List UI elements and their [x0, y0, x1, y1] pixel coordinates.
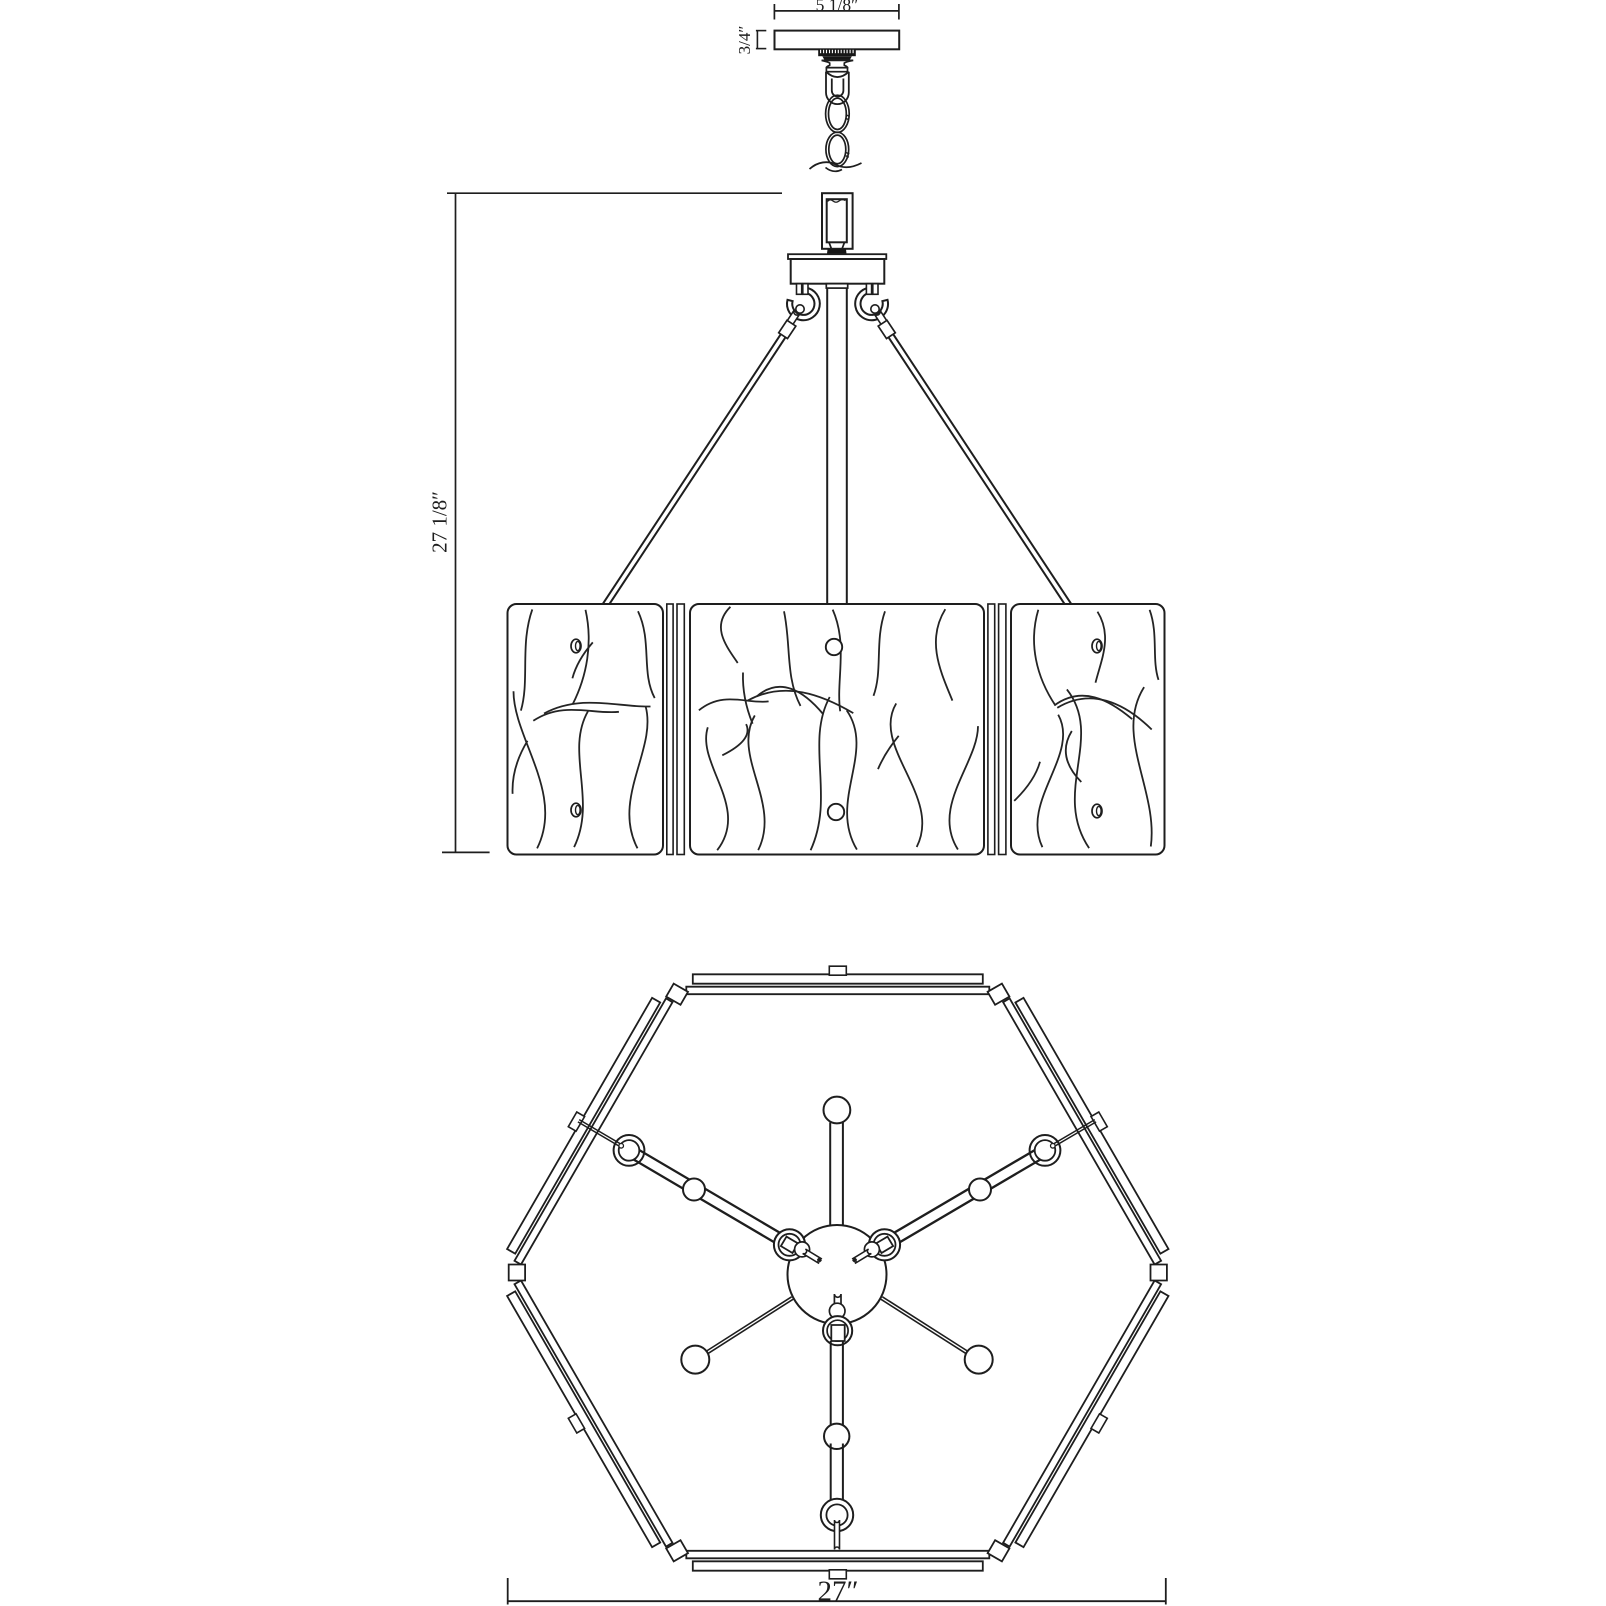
- svg-text:27″: 27″: [817, 1576, 858, 1606]
- svg-text:5 1/8″: 5 1/8″: [816, 0, 859, 15]
- svg-text:3/4″: 3/4″: [735, 26, 754, 55]
- svg-text:27 1/8″: 27 1/8″: [428, 491, 452, 553]
